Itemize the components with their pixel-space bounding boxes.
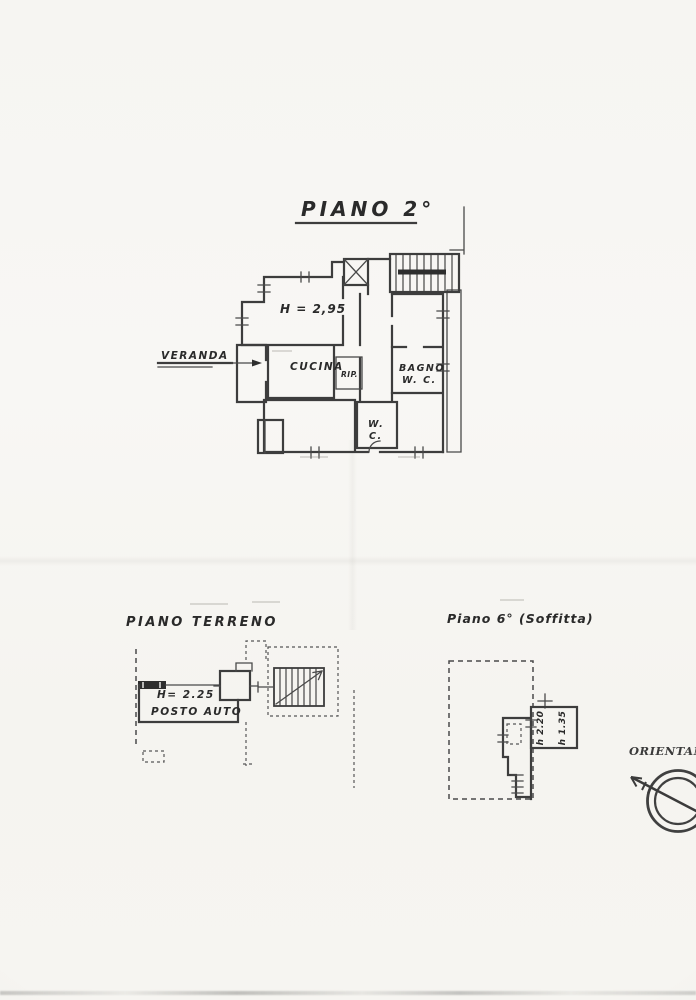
attic-room-outline: [498, 694, 552, 799]
floor-plan-sheet: PIANO 2°: [0, 0, 696, 1000]
stairs-ground-floor: [258, 647, 338, 716]
parking-height-label: H= 2.25: [157, 689, 215, 701]
ground-floor-title: PIANO TERRENO: [126, 615, 278, 630]
kitchen-label: CUCINA: [290, 361, 344, 373]
compass-label: ORIENTAME: [629, 744, 696, 758]
attic-height-inner-label: h 2.20: [536, 711, 546, 746]
attic-title: Piano 6° (Soffitta): [447, 611, 594, 626]
scanned-floor-plan-page: PIANO 2°: [0, 0, 696, 1000]
wc-label-line1: W.: [368, 419, 384, 430]
storage-label: RIP.: [341, 370, 358, 379]
second-floor-title: PIANO 2°: [301, 197, 435, 221]
second-floor-plan: PIANO 2°: [158, 197, 464, 458]
orientation-compass: ORIENTAME: [629, 744, 696, 832]
wc-label-line2: C.: [369, 431, 383, 442]
veranda-callout: VERANDA: [158, 350, 262, 367]
stairs-second-floor: [390, 254, 459, 292]
attic-plan: Piano 6° (Soffitta) h 2.20 h 1.35: [447, 611, 594, 799]
room-height-label: H = 2,95: [280, 302, 346, 316]
veranda-label: VERANDA: [161, 350, 229, 362]
balcony-bottom-left: [258, 420, 283, 453]
ground-floor-plan: PIANO TERRENO: [126, 615, 354, 788]
bathroom-label-line2: W. C.: [402, 375, 437, 386]
attic-height-outer-label: h 1.35: [558, 711, 568, 746]
bathroom-label-line1: BAGNO: [399, 363, 445, 374]
compass-circles: [648, 771, 696, 832]
elevator-shaft: [344, 259, 368, 285]
parking-label: POSTO AUTO: [151, 706, 242, 718]
veranda-arrowhead: [252, 360, 262, 367]
gate-beam: [138, 681, 166, 689]
